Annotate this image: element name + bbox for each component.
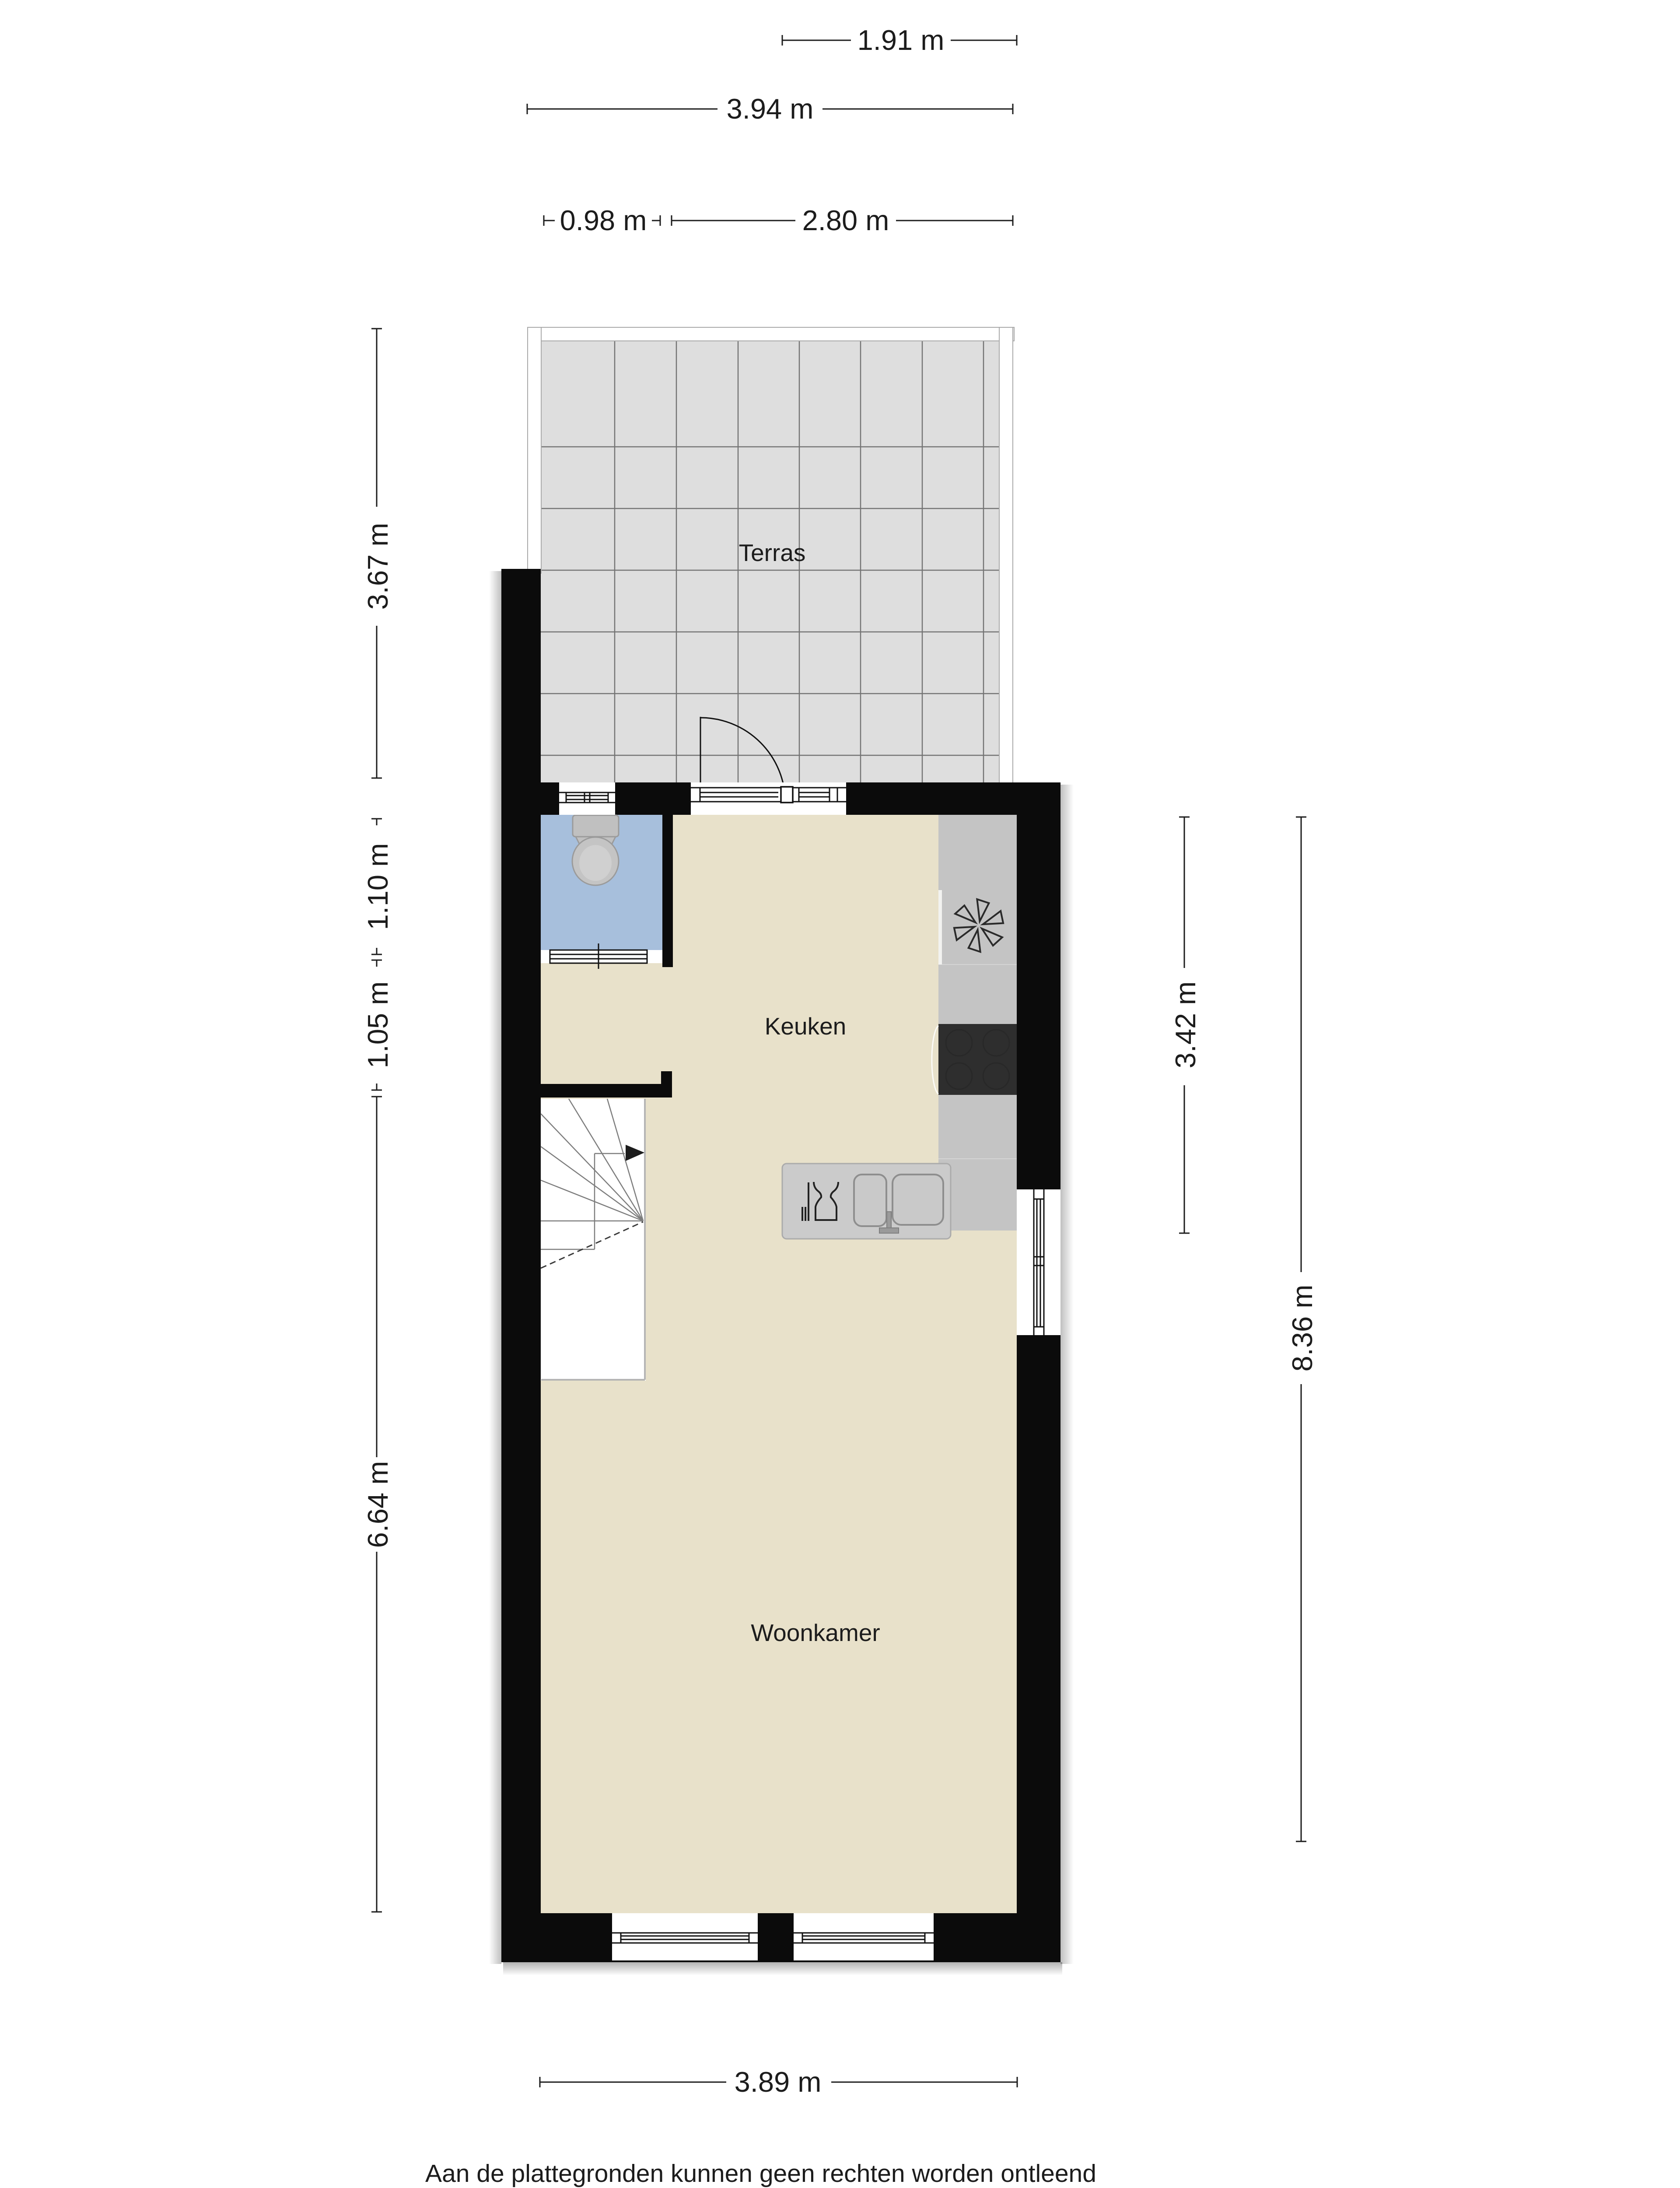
svg-text:0.98 m: 0.98 m (560, 204, 647, 236)
svg-text:8.36 m: 8.36 m (1286, 1285, 1318, 1372)
svg-text:6.64 m: 6.64 m (362, 1461, 394, 1548)
svg-text:Keuken: Keuken (765, 1013, 847, 1040)
svg-text:1.05 m: 1.05 m (362, 982, 394, 1069)
svg-text:2.80 m: 2.80 m (802, 204, 889, 236)
svg-text:Woonkamer: Woonkamer (751, 1619, 880, 1646)
svg-text:Terras: Terras (739, 539, 806, 566)
svg-text:3.94 m: 3.94 m (727, 93, 814, 125)
svg-text:1.10 m: 1.10 m (362, 843, 394, 930)
svg-text:3.42 m: 3.42 m (1169, 982, 1201, 1069)
svg-text:3.89 m: 3.89 m (735, 2066, 822, 2098)
svg-text:1.91 m: 1.91 m (857, 24, 945, 56)
svg-text:3.67 m: 3.67 m (362, 523, 394, 610)
svg-text:Aan de plattegronden kunnen ge: Aan de plattegronden kunnen geen rechten… (425, 2160, 1096, 2188)
